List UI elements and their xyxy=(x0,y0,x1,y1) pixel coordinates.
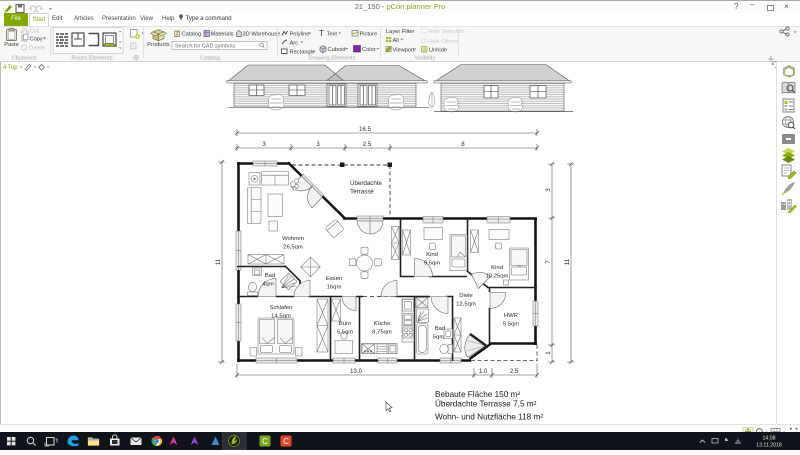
svg-text:Kind: Kind xyxy=(491,265,503,271)
svg-text:Bebaute Fläche 150 m²: Bebaute Fläche 150 m² xyxy=(435,390,520,399)
svg-text:3: 3 xyxy=(545,188,552,192)
svg-text:16qm: 16qm xyxy=(327,285,342,291)
svg-text:2.5: 2.5 xyxy=(510,368,519,375)
svg-text:C: C xyxy=(283,437,289,446)
svg-text:1: 1 xyxy=(545,351,552,355)
svg-text:8,75qm: 8,75qm xyxy=(372,330,392,336)
svg-text:Bad: Bad xyxy=(435,326,445,332)
svg-text:Diele: Diele xyxy=(459,293,473,299)
svg-text:14:08: 14:08 xyxy=(763,436,776,442)
svg-text:Küche: Küche xyxy=(374,321,391,327)
svg-text:Wohnen: Wohnen xyxy=(282,236,304,242)
svg-text:9,5qm: 9,5qm xyxy=(424,261,440,267)
svg-text:1.0: 1.0 xyxy=(479,368,488,375)
svg-text:11: 11 xyxy=(564,258,571,265)
svg-text:3: 3 xyxy=(316,141,320,148)
svg-text:Bad: Bad xyxy=(265,273,275,279)
svg-text:11: 11 xyxy=(215,258,222,265)
svg-text:2.5: 2.5 xyxy=(363,141,372,148)
svg-text:5qm: 5qm xyxy=(433,335,445,341)
svg-text:Schlafen: Schlafen xyxy=(270,305,293,311)
svg-text:Überdachte Terrasse 7,5 m²: Überdachte Terrasse 7,5 m² xyxy=(435,399,537,409)
svg-text:Kind: Kind xyxy=(426,252,438,258)
svg-text:Terrasse: Terrasse xyxy=(350,189,374,196)
svg-text:7: 7 xyxy=(545,260,552,264)
svg-text:Essen: Essen xyxy=(326,276,342,282)
svg-text:HWR: HWR xyxy=(504,313,518,319)
svg-text:14,5qm: 14,5qm xyxy=(271,314,291,320)
svg-text:5,5qm: 5,5qm xyxy=(337,330,353,336)
svg-text:3: 3 xyxy=(262,141,266,148)
svg-text:Büro: Büro xyxy=(339,321,352,327)
svg-text:13.11.2018: 13.11.2018 xyxy=(756,443,782,449)
svg-text:4qm: 4qm xyxy=(262,282,274,288)
svg-text:Überdachte: Überdachte xyxy=(350,180,383,187)
svg-text:8: 8 xyxy=(461,141,465,148)
svg-text:12,5qm: 12,5qm xyxy=(456,302,476,308)
svg-text:5,5qm: 5,5qm xyxy=(503,322,519,328)
svg-text:4 Top: 4 Top xyxy=(3,65,18,71)
svg-text:Wohn- und Nutzfläche 118 m²: Wohn- und Nutzfläche 118 m² xyxy=(435,413,543,422)
svg-text:26,5qm: 26,5qm xyxy=(283,245,303,251)
svg-text:10,25qm: 10,25qm xyxy=(486,274,509,280)
svg-text:16.5: 16.5 xyxy=(359,126,372,133)
svg-text:13.0: 13.0 xyxy=(350,368,363,375)
svg-text:C: C xyxy=(262,437,268,446)
